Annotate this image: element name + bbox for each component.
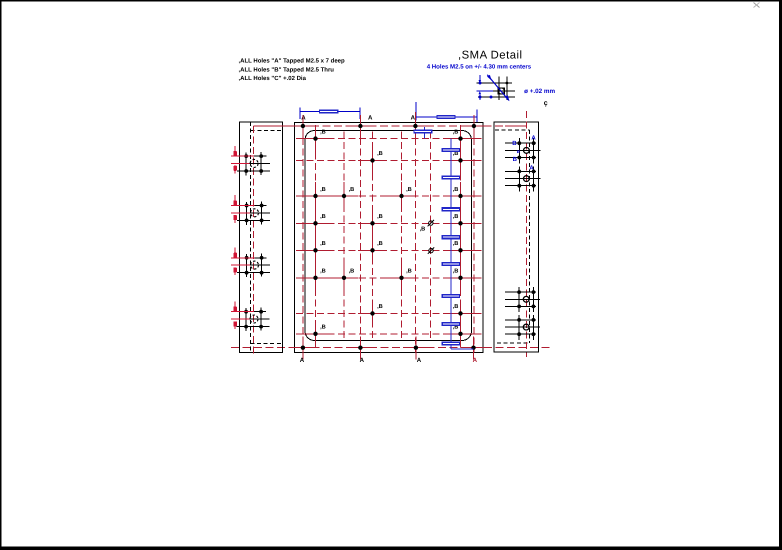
- svg-text:,B: ,B: [349, 187, 355, 193]
- svg-text:,B: ,B: [377, 304, 383, 310]
- svg-text:,B: ,B: [406, 187, 412, 193]
- svg-text:,B: ,B: [453, 129, 459, 135]
- svg-text:,B: ,B: [320, 325, 326, 331]
- svg-text:4 Holes M2.5 on +/- 4.30 mm ce: 4 Holes M2.5 on +/- 4.30 mm centers: [427, 64, 532, 71]
- svg-text:,B: ,B: [420, 226, 426, 232]
- svg-text:,B: ,B: [320, 241, 326, 247]
- svg-text:,B: ,B: [320, 214, 326, 220]
- svg-text:B: B: [513, 156, 518, 163]
- svg-text:,B: ,B: [349, 269, 355, 275]
- svg-text:,ALL Holes "C" +.02 Dia: ,ALL Holes "C" +.02 Dia: [239, 75, 307, 82]
- svg-text:,B: ,B: [377, 214, 383, 220]
- svg-text:,SMA Detail: ,SMA Detail: [458, 49, 523, 61]
- svg-text:,B: ,B: [453, 241, 459, 247]
- svg-text:A: A: [368, 115, 373, 122]
- svg-text:,B: ,B: [320, 129, 326, 135]
- svg-text:ç: ç: [544, 100, 548, 107]
- svg-text:A: A: [411, 115, 416, 122]
- svg-text:,B: ,B: [377, 241, 383, 247]
- svg-text:,ALL Holes "B" Tapped M2.5 Thr: ,ALL Holes "B" Tapped M2.5 Thru: [239, 66, 335, 73]
- svg-text:A: A: [360, 357, 365, 364]
- svg-text:ø +.02 mm: ø +.02 mm: [524, 88, 555, 95]
- svg-text:,ALL Holes "A" Tapped M2.5 x 7: ,ALL Holes "A" Tapped M2.5 x 7 deep: [239, 58, 345, 65]
- svg-text:B: B: [512, 140, 517, 147]
- svg-text:A: A: [529, 164, 534, 171]
- svg-text:,B: ,B: [406, 269, 412, 275]
- svg-text:A: A: [473, 357, 478, 364]
- svg-text:A: A: [417, 357, 422, 364]
- svg-text:,B: ,B: [453, 214, 459, 220]
- svg-text:,B: ,B: [453, 304, 459, 310]
- svg-text:A: A: [301, 115, 306, 122]
- svg-text:,B: ,B: [320, 187, 326, 193]
- svg-text:,B: ,B: [453, 151, 459, 157]
- svg-text:,B: ,B: [377, 151, 383, 157]
- svg-text:,B: ,B: [320, 269, 326, 275]
- svg-text:A: A: [531, 134, 536, 141]
- svg-text:,B: ,B: [453, 269, 459, 275]
- svg-text:,B: ,B: [453, 187, 459, 193]
- svg-text:A: A: [300, 357, 305, 364]
